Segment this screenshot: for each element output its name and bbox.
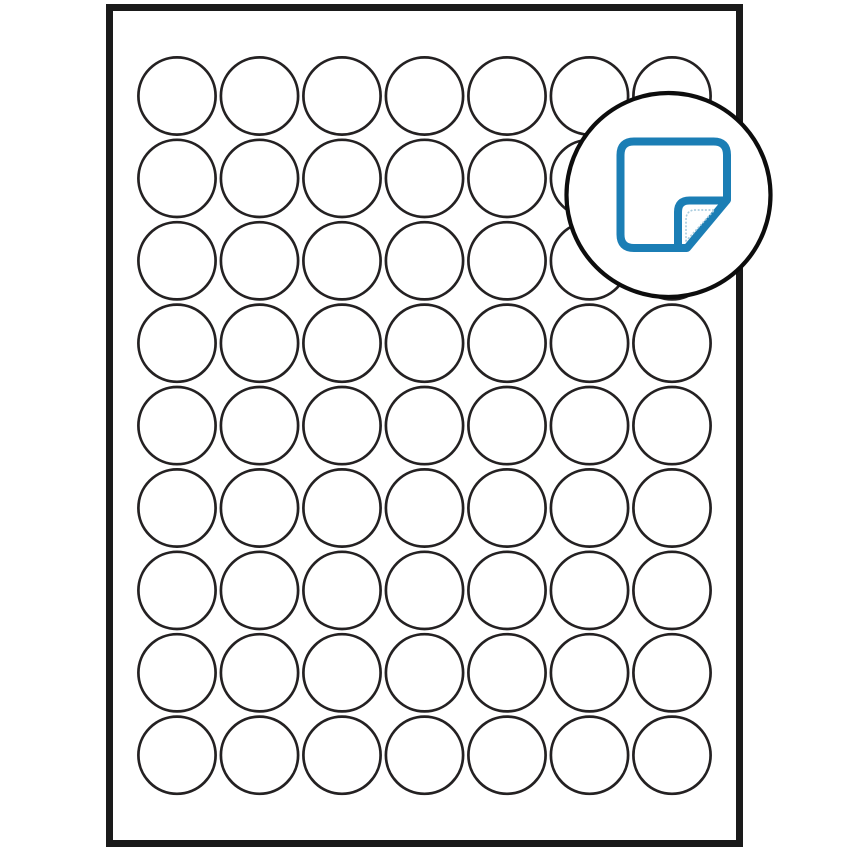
diagram-canvas [0,0,850,850]
label-circle [303,469,380,546]
label-circle [303,634,380,711]
label-circle [386,305,463,382]
label-circle [221,222,298,299]
label-sheet-diagram [0,0,850,850]
label-circle [551,305,628,382]
label-circle [138,222,215,299]
label-circle [468,717,545,794]
label-circle [633,552,710,629]
label-circle [303,717,380,794]
label-circle [386,222,463,299]
label-circle [468,552,545,629]
label-circle [468,634,545,711]
label-circle [468,222,545,299]
label-circle [468,140,545,217]
label-circle [221,387,298,464]
label-circle [551,469,628,546]
zoom-bubble [567,93,771,297]
label-circle [221,717,298,794]
label-circle [221,140,298,217]
label-circle [386,717,463,794]
label-circle [386,469,463,546]
zoom-bubble-circle [567,93,771,297]
label-circle [468,469,545,546]
label-circle [303,222,380,299]
label-circle [303,552,380,629]
label-circle [386,387,463,464]
label-circle [138,717,215,794]
label-circle [138,387,215,464]
label-circle [468,387,545,464]
label-circle [221,57,298,134]
label-circle [386,634,463,711]
label-circle [303,140,380,217]
label-circle [386,140,463,217]
label-circle [221,552,298,629]
label-circle [221,305,298,382]
label-circle [138,552,215,629]
label-circle [138,57,215,134]
label-circle [303,305,380,382]
label-circle [551,387,628,464]
label-circle [633,717,710,794]
label-circle [551,552,628,629]
label-circle [551,717,628,794]
label-circle [221,634,298,711]
label-circle [633,387,710,464]
label-circle [386,57,463,134]
label-circle [633,305,710,382]
label-circle [303,387,380,464]
label-circle [138,140,215,217]
label-circle [138,634,215,711]
label-circle [138,469,215,546]
label-circle [551,634,628,711]
label-circle [468,57,545,134]
label-circle [386,552,463,629]
label-circle [221,469,298,546]
label-circle [303,57,380,134]
label-circle [468,305,545,382]
label-circle [633,634,710,711]
label-circle [633,469,710,546]
label-circle [138,305,215,382]
